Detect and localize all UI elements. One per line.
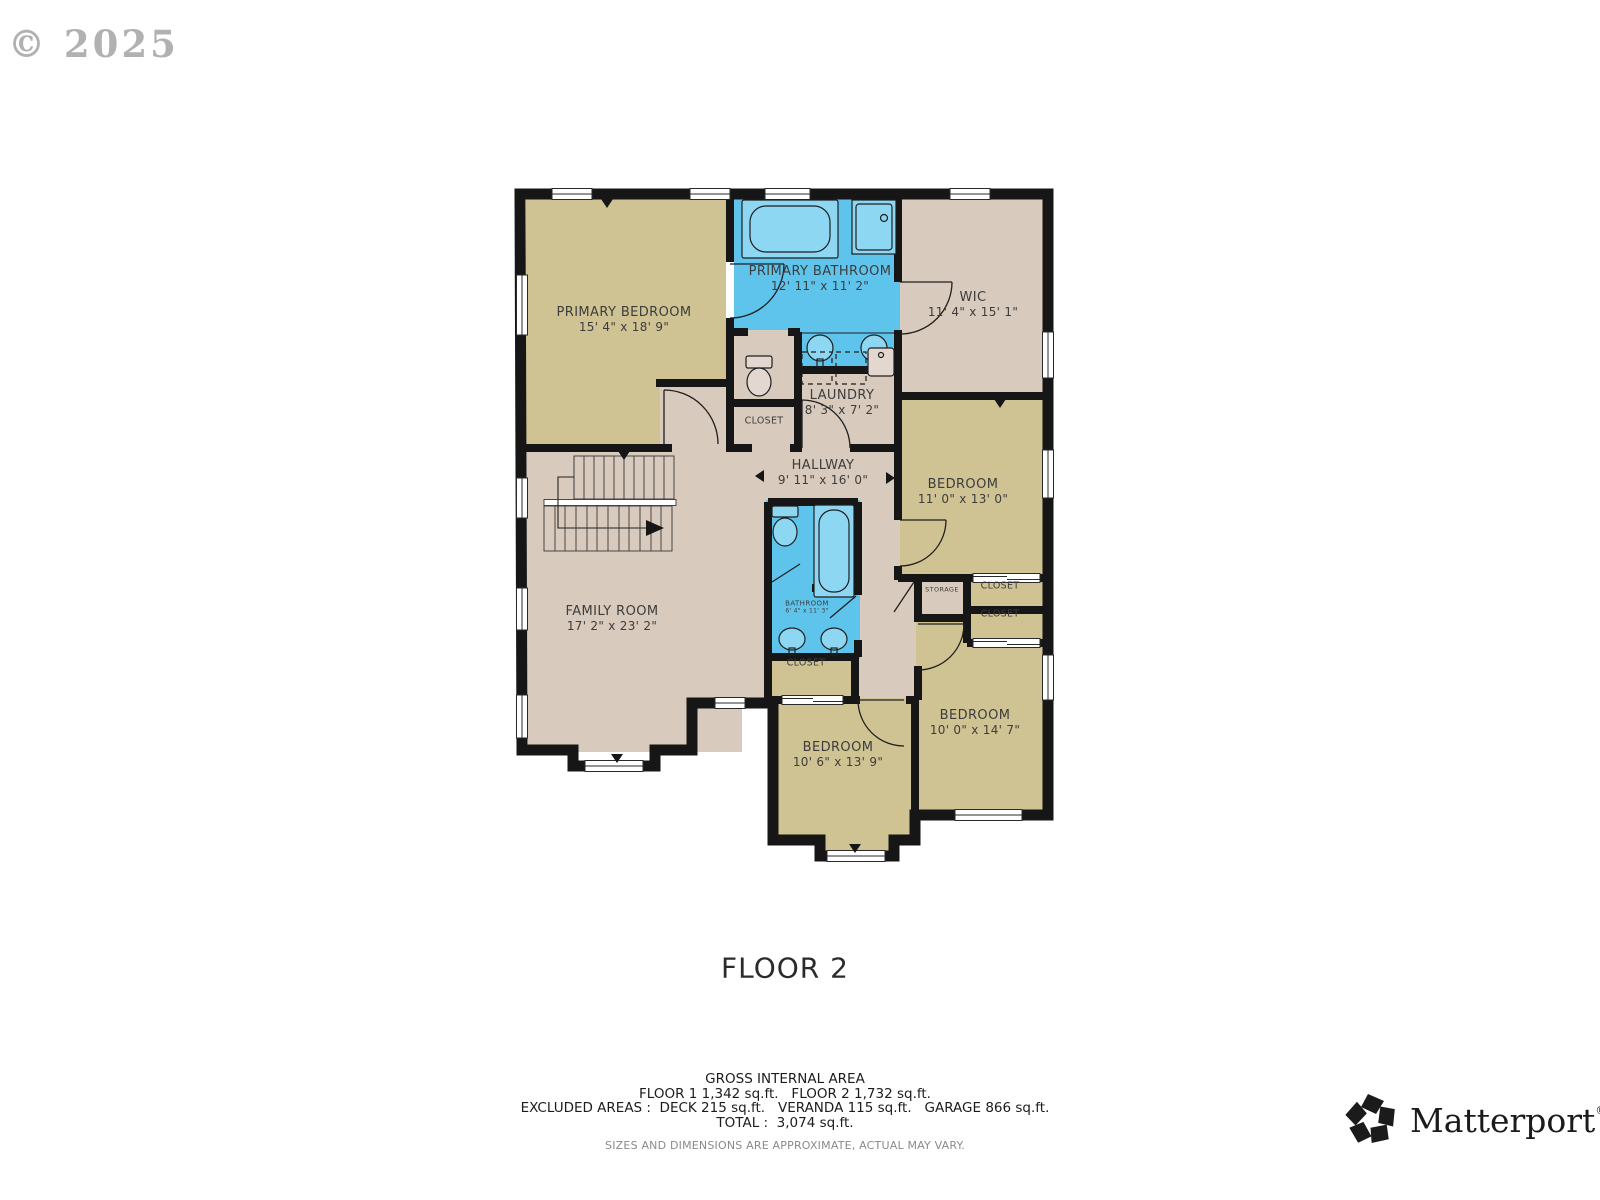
floor-title: FLOOR 2 [721,952,849,985]
room-label-bedroom-right: BEDROOM 11' 0" x 13' 0" [918,477,1008,507]
room-label-closet-right-2: CLOSET [981,609,1020,620]
disclaimer-text: SIZES AND DIMENSIONS ARE APPROXIMATE, AC… [521,1139,1050,1154]
room-label-closet-center: CLOSET [787,658,826,669]
shower-icon [852,200,896,254]
toilet-2-icon [772,506,798,546]
room-label-primary-bathroom: PRIMARY BATHROOM 12' 11" x 11' 2" [749,264,892,294]
room-label-wic: WIC 11' 4" x 15' 1" [928,290,1018,320]
floor-areas-line: FLOOR 1 1,342 sq.ft. FLOOR 2 1,732 sq.ft… [521,1087,1050,1102]
registered-mark: ® [1595,1104,1600,1117]
closet-right-2-sliding-door [973,639,1040,648]
room-label-primary-bedroom: PRIMARY BEDROOM 15' 4" x 18' 9" [557,305,692,335]
closet-center-sliding-door [782,696,843,705]
room-label-family-room: FAMILY ROOM 17' 2" x 23' 2" [566,604,659,634]
gross-internal-area-title: GROSS INTERNAL AREA [521,1072,1050,1087]
floorplan-page: © 2025 [0,0,1600,1200]
room-label-bathroom-center: BATHROOM 6' 4" x 11' 3" [785,600,829,615]
room-label-laundry: LAUNDRY 8' 3" x 7' 2" [805,388,879,418]
matterport-wordmark: Matterport® [1410,1101,1600,1140]
room-label-bedroom-bottom-center: BEDROOM 10' 6" x 13' 9" [793,740,883,770]
room-label-storage: STORAGE [925,587,959,594]
matterport-logo: Matterport® [1344,1093,1600,1147]
matterport-pinwheel-icon [1344,1093,1398,1147]
bathtub-2-icon [814,505,854,597]
room-label-closet-right-1: CLOSET [981,581,1020,592]
area-summary: GROSS INTERNAL AREA FLOOR 1 1,342 sq.ft.… [521,1072,1050,1154]
bathtub-icon [742,200,838,258]
room-label-bedroom-bottom-right: BEDROOM 10' 0" x 14' 7" [930,708,1020,738]
toilet-icon [746,356,772,396]
laundry-sink-icon [868,348,894,376]
room-label-closet-upper: CLOSET [745,416,784,427]
excluded-areas-line: EXCLUDED AREAS : DECK 215 sq.ft. VERANDA… [521,1101,1050,1116]
total-area-line: TOTAL : 3,074 sq.ft. [521,1116,1050,1131]
room-label-hallway: HALLWAY 9' 11" x 16' 0" [778,458,868,488]
